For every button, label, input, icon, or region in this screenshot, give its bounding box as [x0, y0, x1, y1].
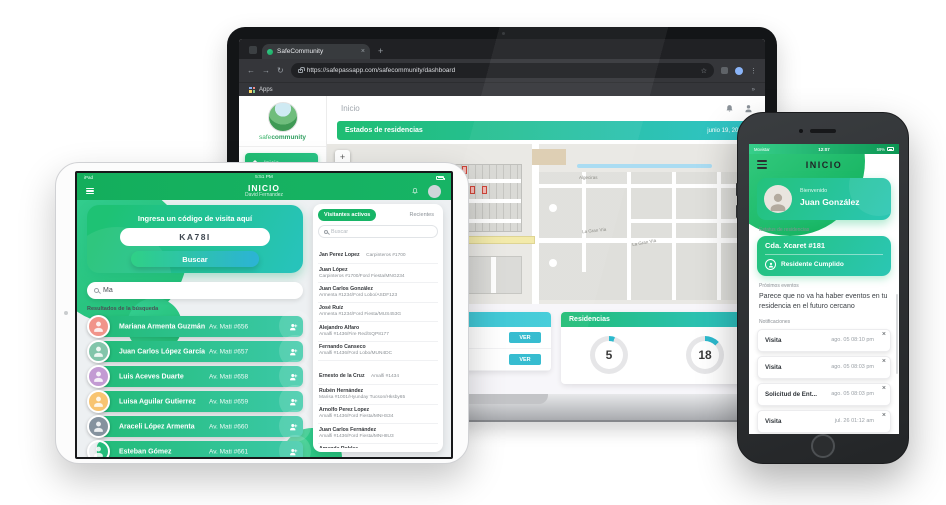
tab-search-icon[interactable]	[249, 46, 257, 54]
search-icon	[324, 230, 328, 234]
avatar	[87, 415, 110, 438]
visitor-list-item[interactable]: Arnolfo Perez Lopez Amalfi #1436/Ford Fi…	[318, 405, 438, 424]
bookmark-star-icon[interactable]: ☆	[701, 67, 707, 75]
tablet-page-title: INICIO	[77, 184, 451, 193]
map-water	[577, 164, 712, 168]
visitor-search-input[interactable]	[331, 229, 432, 235]
resident-result-row[interactable]: Juan Carlos López García Av. Mati #657	[87, 341, 303, 362]
tab-close-icon[interactable]: ×	[361, 48, 365, 55]
map-culdesac	[549, 259, 557, 267]
map-road	[539, 184, 764, 188]
map-lot-red	[482, 186, 487, 194]
resident-name: Mariana Armenta Guzmán	[119, 323, 205, 330]
stat-donut: 5	[590, 336, 628, 374]
notifications-bell-icon[interactable]	[725, 104, 734, 113]
tablet-user-name: David Fernandez	[77, 192, 451, 198]
avatar	[87, 315, 110, 338]
residencias-card-header: Residencias	[561, 312, 753, 327]
resident-name: Esteban Gómez	[119, 448, 172, 455]
notifications-label: Notificaciones	[759, 319, 889, 325]
phone-camera	[799, 129, 803, 133]
stat-value: 18	[691, 341, 719, 369]
person-add-icon[interactable]	[289, 447, 298, 456]
avatar	[764, 185, 792, 213]
residence-card: Cda. Xcaret #181 Residente Cumplido	[757, 236, 891, 276]
notifications-list: Visita ago. 05 08:10 pm × Visita ago. 05…	[757, 329, 891, 434]
stat-donut: 18	[686, 336, 724, 374]
resident-search-input[interactable]	[103, 287, 296, 294]
notification-date: jul. 26 01:12 am	[835, 418, 874, 424]
map-culdesac	[549, 204, 557, 212]
visitor-detail: Armenta #1234/Ford Fiesta/MUS453G	[319, 312, 437, 318]
visitor-name: Juan López	[319, 267, 437, 274]
stat-value: 5	[595, 341, 623, 369]
notification-date: ago. 05 08:03 pm	[831, 364, 874, 370]
reload-button[interactable]: ↻	[277, 67, 284, 75]
resident-address: Av. Mati #660	[209, 423, 248, 430]
resident-name: Juan Carlos López García	[119, 348, 205, 355]
phone-header: INICIO	[749, 154, 899, 175]
visitor-detail: Amalfi #1436/Ford Lobo/MUN4DC	[319, 351, 437, 357]
close-icon[interactable]: ×	[882, 385, 886, 393]
resident-name: Luis Aceves Duarte	[119, 373, 184, 380]
tab-visitantes-activos[interactable]: Visitantes activos	[318, 209, 376, 221]
visitor-name: Ernesto de la Cruz	[319, 373, 365, 379]
residences-status-banner: Estados de residencias junio 19, 2019	[337, 121, 753, 140]
visitor-list-item[interactable]: Amanda Robles Livorno #1125/Nuevo Nuevo/…	[318, 444, 438, 448]
marketing-composite: SafeCommunity × + ← → ↻ https://safepass…	[0, 0, 946, 505]
street-label: Algeciras	[579, 175, 598, 180]
visitor-list-item[interactable]: Alejandro Alfaro Amalfi #1436/Fire Red/S…	[318, 322, 438, 341]
visitor-detail: Amalfi #1436/Fire Red/SQP8177	[319, 332, 437, 338]
map-road	[532, 144, 539, 304]
home-button[interactable]	[811, 434, 835, 458]
greeting-label: Bienvenido	[800, 188, 827, 194]
notification-date: ago. 05 08:10 pm	[831, 337, 874, 343]
page-header: Inicio	[327, 96, 765, 120]
map-right-zone	[539, 172, 764, 300]
user-name: Juan González	[800, 197, 860, 207]
lock-icon	[298, 69, 303, 73]
tablet-status-bar: iPad 5:51 PM	[77, 173, 451, 182]
resident-result-row[interactable]: Luisa Aguilar Gutierrez Av. Mati #659	[87, 391, 303, 412]
tablet-header: iPad 5:51 PM INICIO David Fernandez	[77, 173, 451, 200]
browser-profile-icon[interactable]	[735, 67, 743, 75]
search-results-list: Mariana Armenta Guzmán Av. Mati #656 Jua…	[87, 316, 303, 459]
tablet-screen: iPad 5:51 PM INICIO David Fernandez	[75, 171, 453, 459]
resident-address: Av. Mati #659	[209, 398, 248, 405]
browser-menu-icon[interactable]: ⋮	[750, 67, 757, 75]
new-tab-button[interactable]: +	[378, 46, 383, 56]
notification-title: Visita	[765, 418, 781, 425]
person-add-icon[interactable]	[289, 372, 298, 381]
avatar	[87, 440, 110, 459]
search-icon	[94, 288, 99, 293]
bookmarks-overflow-icon[interactable]: »	[752, 87, 755, 93]
visitors-tabs: Visitantes activos Recientes	[318, 209, 438, 221]
notification-card[interactable]: Solicitud de Ent... ago. 05 08:03 pm ×	[757, 383, 891, 406]
phone-status-bar: Movistar 12:07 59%	[749, 144, 899, 154]
scrollbar[interactable]	[896, 294, 898, 374]
map-road	[717, 172, 721, 300]
profile-icon[interactable]	[744, 104, 753, 113]
avatar	[87, 365, 110, 388]
resident-address: Av. Mati #656	[209, 323, 248, 330]
map-street	[491, 257, 496, 293]
phone-page-title: INICIO	[749, 160, 899, 170]
forward-button[interactable]: →	[262, 67, 270, 75]
divider	[765, 254, 883, 255]
visitor-detail: Carpinteros #1700/Ford Fiesta/MNG234	[319, 274, 437, 280]
visitor-detail: Marisa #1001/Hyunday Tucson/Hksby65	[319, 395, 437, 401]
visitor-list-item[interactable]: Jan Perez Lopez Carpinteros #1700	[318, 240, 438, 264]
visitor-detail: Amalfi #1436/Ford Fiesta/MNH8U3	[319, 434, 437, 440]
back-button[interactable]: ←	[247, 67, 255, 75]
visitor-name: Alejandro Alfaro	[319, 325, 437, 332]
visitor-search-field[interactable]	[318, 225, 438, 238]
visitor-list-item[interactable]: Juan López Carpinteros #1700/Ford Fiesta…	[318, 264, 438, 283]
phone-device: Movistar 12:07 59% INICIO Bienvenido Jua…	[737, 112, 909, 464]
welcome-card: Bienvenido Juan González	[757, 178, 891, 220]
avatar	[87, 340, 110, 363]
visit-code-card: Ingresa un código de visita aquí Buscar	[87, 205, 303, 273]
ver-button[interactable]: VER	[509, 354, 541, 365]
notification-title: Visita	[765, 364, 781, 371]
resident-name: Araceli López Armenta	[119, 423, 195, 430]
status-time: 5:51 PM	[77, 175, 451, 180]
visitors-panel: Visitantes activos Recientes Jan Perez L…	[313, 204, 443, 452]
tablet-camera	[64, 311, 68, 315]
battery-icon	[887, 147, 894, 151]
person-add-icon[interactable]	[289, 347, 298, 356]
close-icon[interactable]: ×	[882, 358, 886, 366]
resident-search-field[interactable]	[87, 282, 303, 299]
person-add-icon[interactable]	[289, 422, 298, 431]
resident-name: Luisa Aguilar Gutierrez	[119, 398, 196, 405]
status-time: 12:07	[749, 147, 899, 152]
visitor-list-item[interactable]: Rubén Hernández Marisa #1001/Hyunday Tuc…	[318, 385, 438, 404]
bookmarks-bar: Apps »	[239, 82, 765, 96]
events-empty-message: Parece que no va ha haber eventos en tu …	[759, 292, 889, 312]
logo-text: safecommunity	[259, 134, 306, 141]
laptop-webcam	[502, 32, 505, 35]
visitor-list-item[interactable]: José Ruíz Armenta #1234/Ford Fiesta/MUS4…	[318, 303, 438, 322]
notification-date: ago. 05 08:03 pm	[831, 391, 874, 397]
person-add-icon[interactable]	[289, 322, 298, 331]
buscar-button[interactable]: Buscar	[131, 251, 259, 267]
extension-icon[interactable]	[721, 67, 728, 74]
tab-title: SafeCommunity	[277, 48, 357, 55]
notification-card[interactable]: Visita jul. 26 01:12 am ×	[757, 410, 891, 433]
visitor-detail: Amalfi #1434	[371, 374, 399, 379]
visitor-detail: Amalfi #1436/Ford Fiesta/MNHS34	[319, 414, 437, 420]
browser-tab-strip: SafeCommunity × +	[239, 39, 765, 59]
logo-image	[268, 102, 298, 132]
browser-toolbar: ← → ↻ https://safepassapp.com/safecommun…	[239, 59, 765, 82]
page-title: Inicio	[341, 104, 360, 113]
visitor-name: Juan Carlos Fernández	[319, 427, 437, 434]
phone-earpiece	[810, 129, 836, 133]
visitor-name: Amanda Robles	[319, 446, 437, 448]
notification-title: Visita	[765, 337, 781, 344]
visitor-detail: Carpinteros #1700	[366, 253, 405, 258]
resident-address: Av. Mati #657	[209, 348, 248, 355]
app-logo: safecommunity	[239, 102, 326, 147]
residence-address: Cda. Xcaret #181	[765, 241, 883, 250]
visitor-list-item[interactable]: Juan Carlos González Armenta #1234/Ford …	[318, 283, 438, 302]
address-bar[interactable]: https://safepassapp.com/safecommunity/da…	[291, 63, 714, 78]
phone-screen: Movistar 12:07 59% INICIO Bienvenido Jua…	[749, 144, 899, 434]
notification-card[interactable]: Visita ago. 05 08:03 pm ×	[757, 356, 891, 379]
visitor-name: Jan Perez Lopez	[319, 252, 360, 258]
visitor-detail: Armenta #1234/Ford Lobo/ASDF123	[319, 293, 437, 299]
notification-title: Solicitud de Ent...	[765, 391, 817, 398]
tablet-device: iPad 5:51 PM INICIO David Fernandez	[55, 162, 469, 464]
upcoming-events-label: Próximos eventos	[759, 283, 889, 289]
apps-grid-icon	[249, 87, 255, 93]
visitors-list: Jan Perez Lopez Carpinteros #1700 Juan L…	[318, 240, 438, 448]
avatar	[87, 390, 110, 413]
resident-address: Av. Mati #661	[209, 448, 248, 455]
map-road	[672, 172, 676, 300]
ver-button[interactable]: VER	[509, 332, 541, 343]
logo-part1: safe	[259, 134, 271, 141]
battery-icon	[436, 176, 444, 180]
close-icon[interactable]: ×	[882, 412, 886, 420]
resident-result-row[interactable]: Araceli López Armenta Av. Mati #660	[87, 416, 303, 437]
tab-recientes[interactable]: Recientes	[410, 212, 434, 218]
visitor-name: Rubén Hernández	[319, 388, 437, 395]
apps-bookmark[interactable]: Apps	[259, 87, 273, 93]
map-road	[627, 172, 631, 300]
browser-tab[interactable]: SafeCommunity ×	[262, 44, 370, 59]
visitor-list-item[interactable]: Fernando Canseco Amalfi #1436/Ford Lobo/…	[318, 342, 438, 361]
map-lot-red	[470, 186, 475, 194]
favicon-icon	[267, 49, 273, 55]
volume-button	[736, 183, 738, 196]
map-road	[582, 172, 586, 272]
volume-button	[736, 205, 738, 218]
logo-part2: community	[271, 134, 306, 141]
avatar[interactable]	[428, 185, 441, 198]
resident-result-row[interactable]: Mariana Armenta Guzmán Av. Mati #656	[87, 316, 303, 337]
resident-result-row[interactable]: Luis Aceves Duarte Av. Mati #658	[87, 366, 303, 387]
map-building	[532, 149, 566, 165]
banner-title: Estados de residencias	[345, 127, 423, 134]
results-label: Resultados de la búsqueda	[87, 306, 303, 312]
visitor-list-item[interactable]: Ernesto de la Cruz Amalfi #1434	[318, 361, 438, 385]
close-icon[interactable]: ×	[882, 331, 886, 339]
visit-code-prompt: Ingresa un código de visita aquí	[87, 214, 303, 223]
visit-code-input[interactable]	[120, 228, 270, 246]
notification-card[interactable]: Visita ago. 05 08:10 pm ×	[757, 329, 891, 352]
visitor-list-item[interactable]: Juan Carlos Fernández Amalfi #1436/Ford …	[318, 424, 438, 443]
person-add-icon[interactable]	[289, 397, 298, 406]
resident-result-row[interactable]: Esteban Gómez Av. Mati #661	[87, 441, 303, 459]
residencias-card: Residencias 5 18	[561, 312, 753, 384]
residence-status: Residente Cumplido	[781, 261, 844, 268]
resident-address: Av. Mati #658	[209, 373, 248, 380]
url-text: https://safepassapp.com/safecommunity/da…	[307, 67, 697, 74]
visitor-name: Juan Carlos González	[319, 286, 437, 293]
residence-status-label: Estatus de residencias	[759, 227, 889, 233]
notifications-bell-icon[interactable]	[411, 187, 419, 195]
resident-icon	[765, 259, 776, 270]
